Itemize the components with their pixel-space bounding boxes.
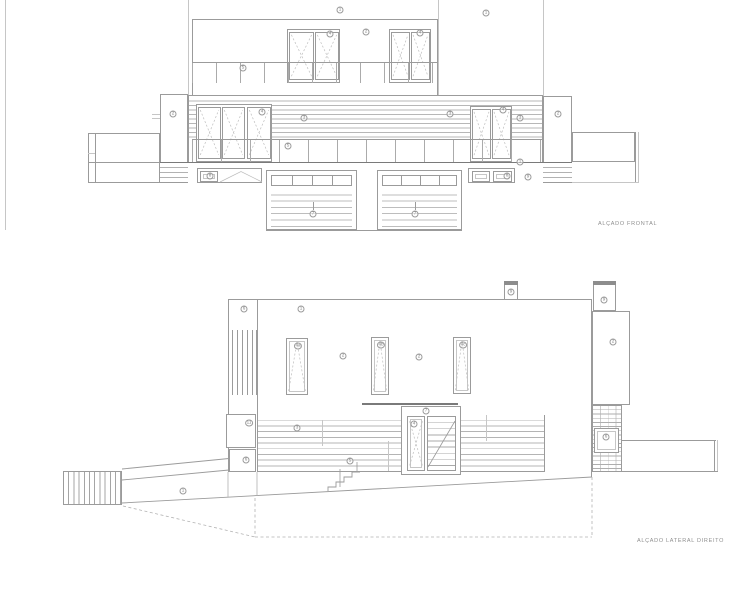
deck-joint — [388, 441, 389, 471]
walkway-top-line — [122, 459, 229, 470]
right-wing-base — [622, 471, 718, 472]
deck-joint — [322, 420, 323, 446]
callout-label-2: 2 — [340, 353, 347, 360]
callout-label-4c: 4c — [459, 342, 467, 349]
callout-label-5: 5 — [347, 458, 354, 465]
callout-label-1: 1 — [180, 488, 187, 495]
callout-label-3: 3 — [294, 425, 301, 432]
lateral-elevation: ALÇADO LATERAL DIREITO 614a24b24c9921136… — [0, 0, 754, 596]
chimney-cap — [593, 281, 616, 285]
callout-label-6: 6 — [603, 434, 610, 441]
drawing-sheet: ALÇADO FRONTAL 11424524353432877819 — [0, 0, 754, 596]
right-wing-top — [622, 440, 716, 441]
site-lines-overlay — [0, 0, 754, 596]
hatch-flap-symbol — [220, 172, 262, 183]
walkway-bottom-line — [122, 470, 229, 480]
door-overhang-line — [362, 403, 458, 405]
interior-stair — [427, 416, 456, 471]
callout-label-11: 11 — [245, 420, 253, 427]
chimney-cap — [504, 281, 518, 285]
callout-label-6: 6 — [241, 306, 248, 313]
right-wing-end — [714, 440, 715, 472]
brick-pier-opening — [594, 428, 619, 453]
right-wing-end-outer — [717, 440, 718, 472]
right-column-upper — [592, 311, 630, 405]
callout-label-4: 4 — [411, 421, 418, 428]
callout-label-1: 1 — [298, 306, 305, 313]
callout-label-7: 7 — [423, 408, 430, 415]
lateral-elevation-title: ALÇADO LATERAL DIREITO — [637, 538, 724, 544]
terrain-line — [122, 477, 592, 503]
callout-label-2: 2 — [416, 354, 423, 361]
callout-label-9: 9 — [601, 297, 608, 304]
exterior-steps — [328, 472, 360, 491]
callout-label-9: 9 — [508, 289, 515, 296]
boundary-diagonal-dashed — [123, 506, 255, 537]
louver-panel — [232, 330, 257, 395]
roof-edge-line — [228, 299, 592, 300]
callout-label-2: 2 — [610, 339, 617, 346]
deck-joint — [486, 415, 487, 441]
retaining-wall — [63, 471, 122, 505]
callout-label-6: 6 — [243, 457, 250, 464]
column-box-upper — [226, 414, 256, 448]
